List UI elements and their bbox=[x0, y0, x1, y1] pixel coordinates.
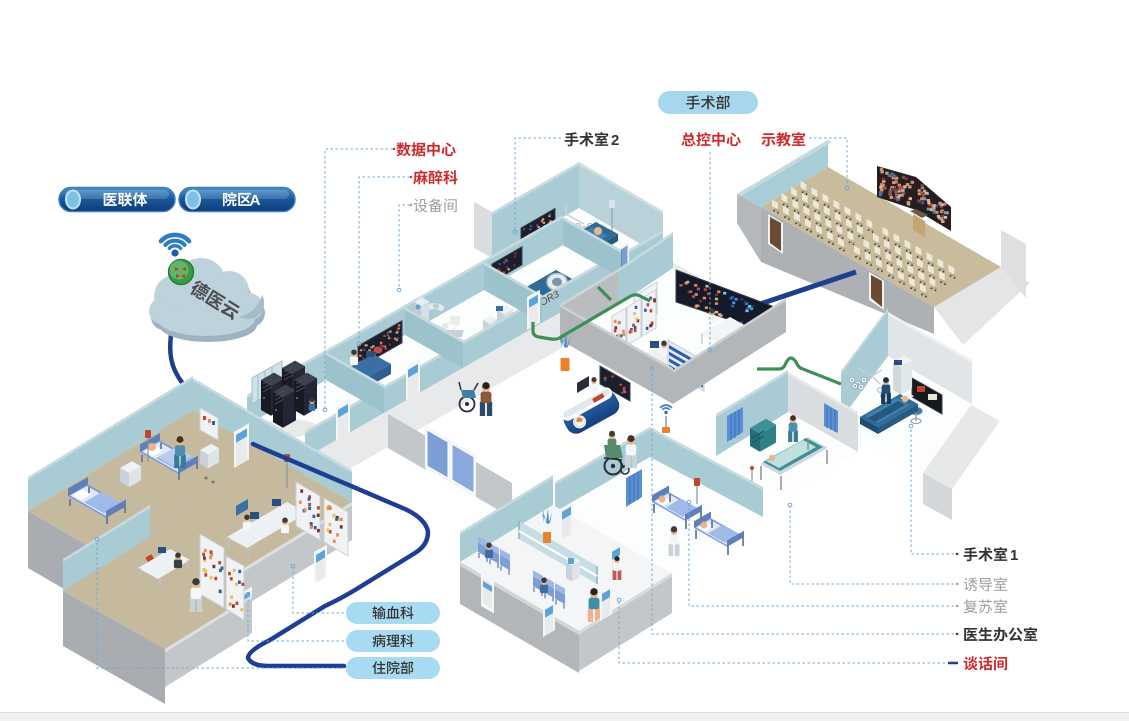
svg-text:1: 1 bbox=[1010, 547, 1018, 564]
svg-text:2: 2 bbox=[611, 132, 619, 149]
svg-text:A: A bbox=[250, 192, 261, 209]
